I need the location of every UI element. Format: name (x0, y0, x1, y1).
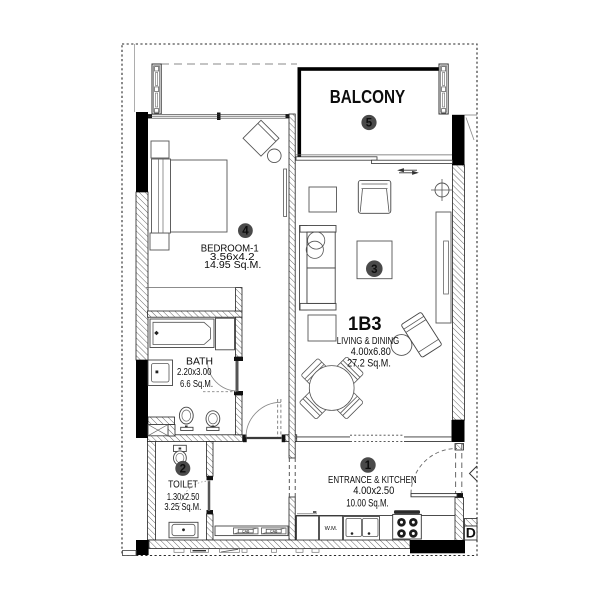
svg-text:TOILET: TOILET (168, 480, 198, 491)
svg-text:4: 4 (242, 226, 249, 238)
svg-text:2.20x3.00: 2.20x3.00 (177, 367, 212, 378)
svg-text:BALCONY: BALCONY (330, 86, 406, 107)
svg-text:5: 5 (366, 118, 373, 130)
svg-text:CAB: CAB (242, 530, 250, 534)
svg-text:3.25 Sq.M.: 3.25 Sq.M. (164, 502, 201, 513)
svg-text:14.95 Sq.M.: 14.95 Sq.M. (204, 260, 261, 271)
svg-text:4.00x6.80: 4.00x6.80 (351, 346, 391, 358)
svg-text:6.6 Sq.M.: 6.6 Sq.M. (180, 379, 213, 390)
svg-text:CAB: CAB (270, 530, 278, 534)
svg-text:27.2 Sq.M.: 27.2 Sq.M. (347, 358, 391, 370)
svg-text:1: 1 (365, 460, 372, 472)
svg-text:10.00 Sq.M.: 10.00 Sq.M. (346, 497, 388, 509)
svg-text:W.M.: W.M. (325, 526, 338, 532)
svg-text:3: 3 (371, 264, 377, 276)
svg-text:2: 2 (180, 464, 186, 476)
svg-text:D: D (466, 525, 476, 541)
svg-text:BATH: BATH (186, 356, 213, 367)
svg-text:4.00x2.50: 4.00x2.50 (353, 485, 394, 497)
svg-text:1B3: 1B3 (348, 313, 382, 335)
